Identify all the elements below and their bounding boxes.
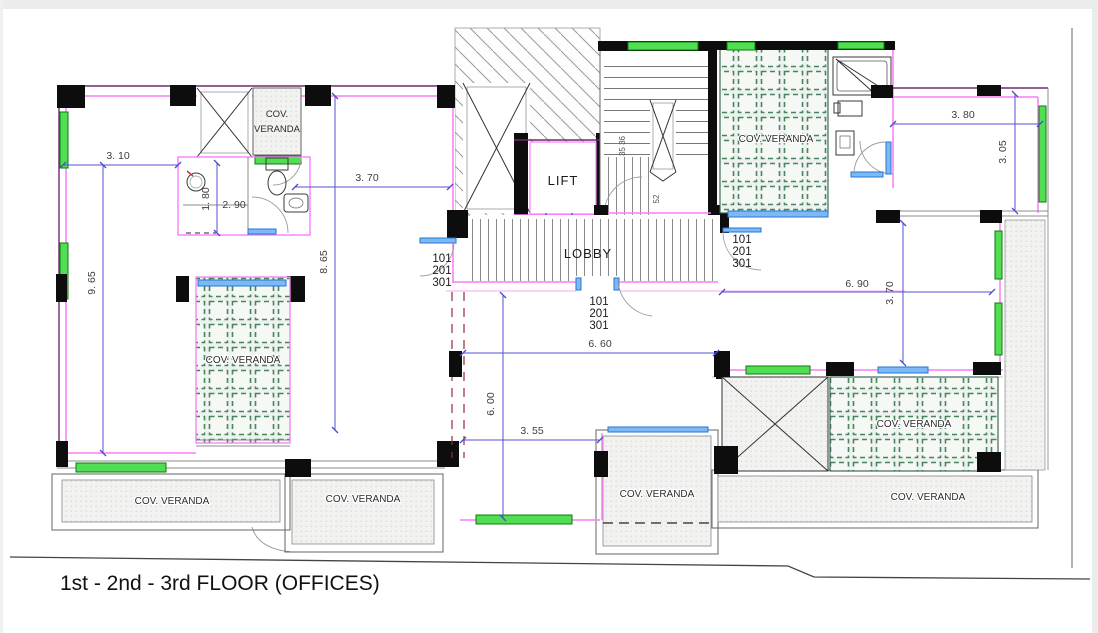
dim-660: 6. 60 [588, 338, 612, 350]
dim-180: 1. 80 [200, 187, 212, 211]
lift-label: LIFT [548, 173, 579, 188]
unit-101: 101 [432, 253, 451, 265]
door-leaf-room-ne [886, 142, 891, 174]
floor-plan-canvas: 3. 10 9. 65 1. 80 2. 90 3. 70 8. 65 3. 8… [0, 0, 1098, 633]
window-west-1 [60, 112, 68, 168]
lobby-west-door-leaf [420, 238, 456, 243]
veranda-strip-east [1005, 213, 1048, 470]
window-east-ne [1039, 106, 1046, 202]
unit-201: 201 [732, 246, 751, 258]
veranda-ne-label: COV. VERANDA [739, 134, 814, 145]
unit-101: 101 [732, 234, 751, 246]
dim-600: 6. 00 [485, 392, 497, 416]
unit-101: 101 [589, 296, 608, 308]
window-east-1 [995, 231, 1002, 279]
veranda-strip-sw-label: COV. VERANDA [135, 496, 210, 507]
unit-stack-east: 101 201 301 [732, 234, 751, 270]
unit-stack-south: 101 201 301 [589, 296, 608, 332]
dim-865: 8. 65 [318, 250, 330, 274]
dim-355: 3. 55 [520, 425, 544, 437]
canvas-edge-left [0, 0, 3, 633]
unit-201: 201 [432, 265, 451, 277]
dim-370: 3. 70 [355, 172, 379, 184]
window-south-east-1 [746, 366, 810, 374]
stair-steps-lower: 52 [652, 194, 661, 203]
drawing-title: 1st - 2nd - 3rd FLOOR (OFFICES) [60, 572, 380, 596]
window-south-1 [76, 463, 166, 472]
floor-plan: 3. 10 9. 65 1. 80 2. 90 3. 70 8. 65 3. 8… [0, 0, 1098, 633]
veranda-green-northeast [714, 41, 834, 217]
bathroom-ne-body [828, 45, 893, 190]
veranda-strip-sc-label: COV. VERANDA [326, 494, 401, 505]
dim-290: 2. 90 [222, 199, 246, 211]
window-bath-ne [838, 42, 884, 49]
unit-301: 301 [432, 277, 451, 289]
veranda-se-label: COV. VERANDA [877, 419, 952, 430]
veranda-strip-southcenter [285, 474, 443, 552]
window-stair-top [628, 42, 698, 50]
stairwell [594, 41, 729, 233]
window-east-2 [995, 303, 1002, 355]
dim-965: 9. 65 [86, 271, 98, 295]
veranda-nw-label-2: VERANDA [254, 124, 301, 135]
dim-305: 3. 05 [997, 140, 1009, 164]
door-leaf-bath-ne [851, 172, 883, 177]
veranda-strip-ms-label: COV. VERANDA [620, 489, 695, 500]
stair-steps-upper: 35 36 [618, 135, 627, 156]
veranda-strip-southeast [712, 470, 1038, 528]
canvas-edge-right [1092, 0, 1098, 633]
door-leaf-bathroom-west [248, 229, 276, 234]
dim-310: 3. 10 [106, 150, 130, 162]
door-leaf-east-entry [723, 228, 761, 232]
canvas-edge-top [0, 0, 1098, 9]
veranda-nw-label-1: COV. [266, 109, 288, 120]
light-well-west [197, 88, 252, 157]
dim-690: 6. 90 [845, 278, 869, 290]
unit-stack-west: 101 201 301 [432, 253, 451, 289]
unit-301: 301 [732, 258, 751, 270]
window-south-east-2 [878, 367, 928, 373]
veranda-west-label: COV. VERANDA [206, 355, 281, 366]
unit-201: 201 [589, 308, 608, 320]
window-hall-south [476, 515, 572, 524]
dim-370v: 3. 70 [884, 281, 896, 305]
veranda-strip-se-label: COV. VERANDA [891, 492, 966, 503]
lobby-door-jamb-left [576, 278, 581, 290]
dim-380: 3. 80 [951, 109, 975, 121]
lobby-label: LOBBY [564, 246, 612, 261]
unit-301: 301 [589, 320, 608, 332]
